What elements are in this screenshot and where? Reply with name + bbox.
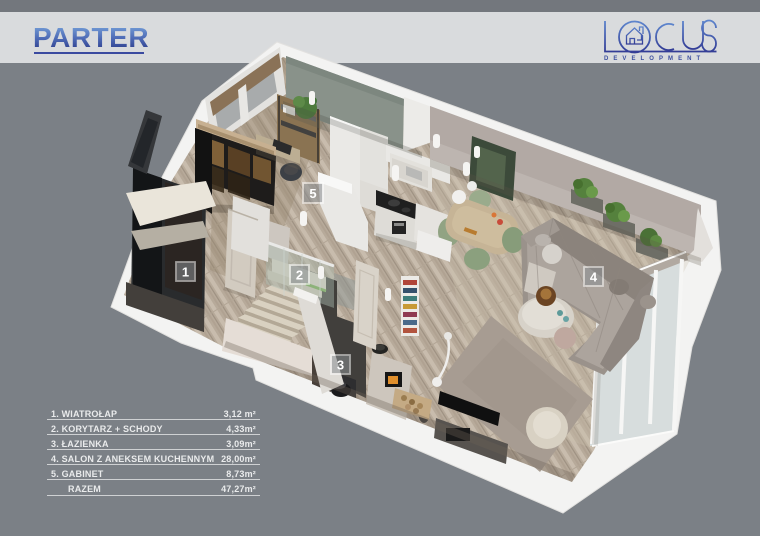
svg-text:2: 2	[296, 268, 303, 283]
svg-text:4: 4	[590, 270, 598, 285]
svg-text:5: 5	[309, 186, 316, 201]
svg-text:3: 3	[337, 358, 344, 373]
svg-text:1: 1	[182, 265, 189, 280]
